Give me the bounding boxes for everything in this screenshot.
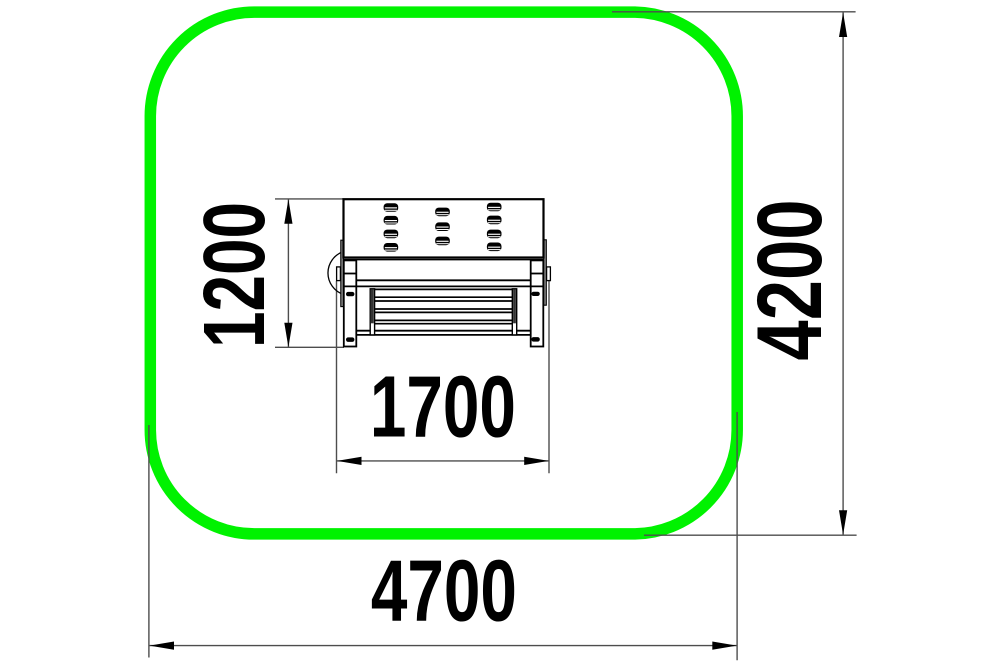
svg-text:1200: 1200 — [186, 202, 283, 348]
svg-text:1700: 1700 — [370, 359, 516, 456]
svg-text:4700: 4700 — [371, 542, 517, 639]
svg-text:4200: 4200 — [738, 199, 841, 360]
